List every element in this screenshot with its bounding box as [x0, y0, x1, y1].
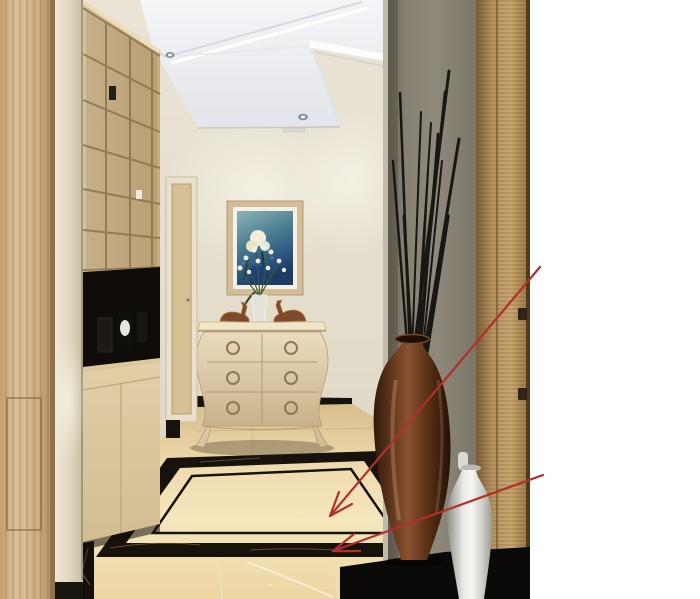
- product-panel: KJP1809: [530, 0, 700, 599]
- shelving-unit: [83, 2, 160, 550]
- ceiling-vent: [283, 128, 305, 132]
- shelf-decor-vase: [109, 86, 116, 100]
- door-hinge: [518, 308, 527, 320]
- wood-wall-panel: [0, 0, 55, 599]
- wall-pillar: [50, 0, 86, 599]
- hallway-door: [166, 177, 197, 438]
- shelf-decor-ornament: [136, 190, 142, 199]
- glass-vase: [252, 295, 267, 323]
- interior-photo: [0, 0, 530, 599]
- tile-catalog-page: KJP1809: [0, 0, 700, 599]
- door-hinge: [518, 388, 527, 400]
